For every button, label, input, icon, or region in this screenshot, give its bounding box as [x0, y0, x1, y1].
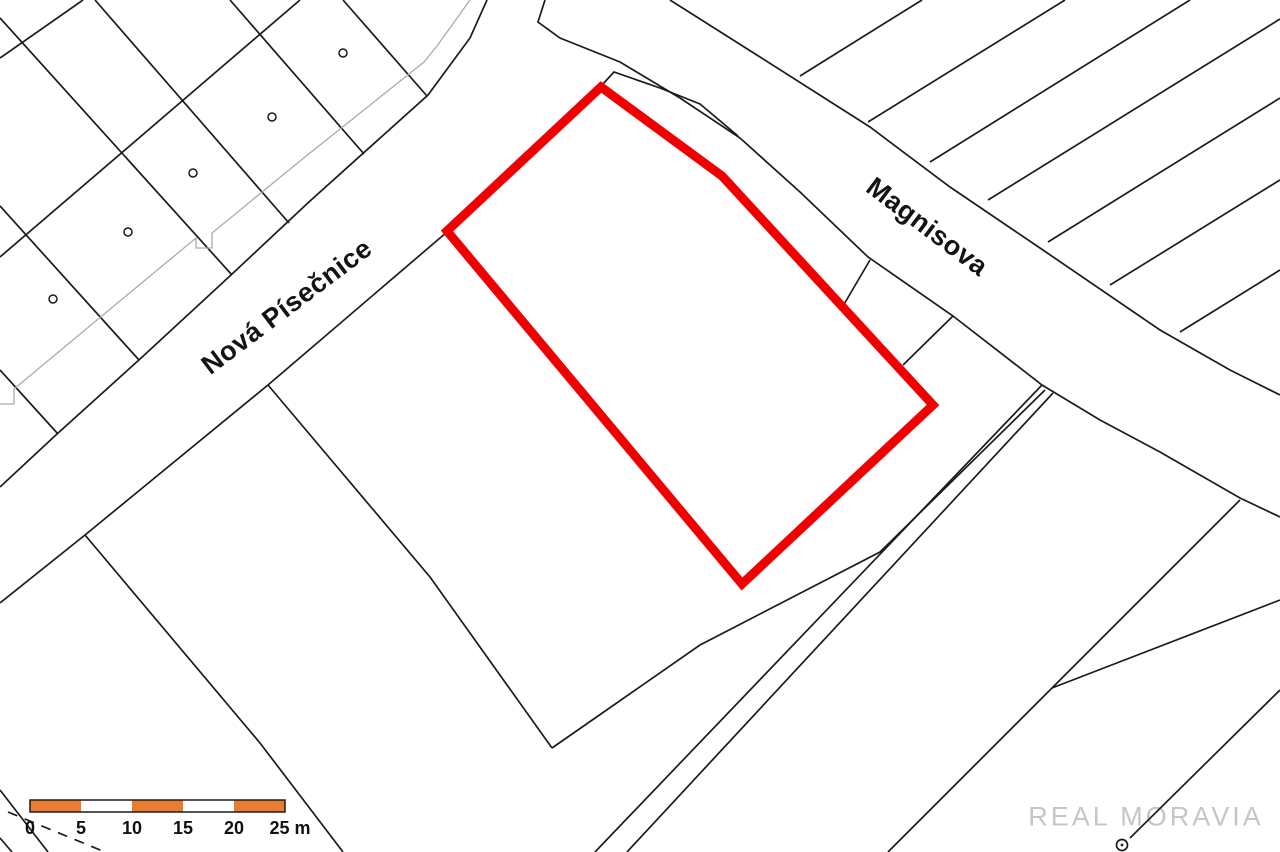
- parcel-boundary-line: [538, 0, 1280, 517]
- parcel-boundary-line: [0, 206, 139, 360]
- parcel-boundary-line: [868, 0, 1065, 122]
- scale-bar-segment: [234, 800, 285, 812]
- parcel-boundary-line: [1110, 180, 1280, 285]
- scale-label: 20: [224, 818, 244, 838]
- survey-point-circle: [189, 169, 197, 177]
- cadastral-map: 0510152025 m: [0, 0, 1280, 852]
- parcel-boundary-line: [1048, 98, 1280, 242]
- parcel-boundary-line: [0, 370, 58, 434]
- parcel-boundary-line: [343, 0, 427, 96]
- cadastral-map-view: REAL MORAVIA 0510152025 m Nová Písečnice…: [0, 0, 1280, 852]
- parcel-boundary-line: [930, 0, 1190, 162]
- scale-label: 5: [76, 818, 86, 838]
- scale-label: 10: [122, 818, 142, 838]
- parcel-boundary-line: [268, 385, 552, 748]
- parcel-boundary-line: [988, 19, 1280, 200]
- parcel-boundary-line: [0, 0, 487, 487]
- survey-point-circle: [268, 113, 276, 121]
- scale-bar-segment: [183, 800, 234, 812]
- survey-point-circle: [124, 228, 132, 236]
- survey-point-circle: [49, 295, 57, 303]
- parcel-boundary-line: [0, 232, 447, 603]
- parcel-boundary-line: [1130, 690, 1280, 838]
- scale-label: 0: [25, 818, 35, 838]
- scale-label: 15: [173, 818, 193, 838]
- parcel-boundary-line: [888, 500, 1240, 852]
- scale-bar-segment: [81, 800, 132, 812]
- parcel-boundary-line: [627, 393, 1053, 852]
- scale-bar-segment: [132, 800, 183, 812]
- scale-label: 25 m: [269, 818, 310, 838]
- parcel-boundary-line: [0, 18, 232, 275]
- survey-point-circle: [339, 49, 347, 57]
- highlighted-parcel-outline: [447, 87, 933, 584]
- parcel-boundary-line: [843, 260, 870, 306]
- parcel-boundary-line: [230, 0, 364, 154]
- parcel-boundary-line: [1180, 270, 1280, 332]
- parcel-boundary-line: [0, 0, 83, 58]
- parcel-boundary-line: [0, 838, 12, 852]
- parcel-boundary-line: [595, 385, 1042, 852]
- parcel-boundary-line: [0, 0, 300, 257]
- scale-bar-segment: [30, 800, 81, 812]
- survey-point-dot: [1121, 844, 1124, 847]
- parcel-boundary-line: [903, 316, 953, 365]
- parcel-boundary-line: [1052, 600, 1280, 688]
- parcel-boundary-line: [670, 0, 1280, 395]
- parcel-boundary-line: [800, 0, 922, 76]
